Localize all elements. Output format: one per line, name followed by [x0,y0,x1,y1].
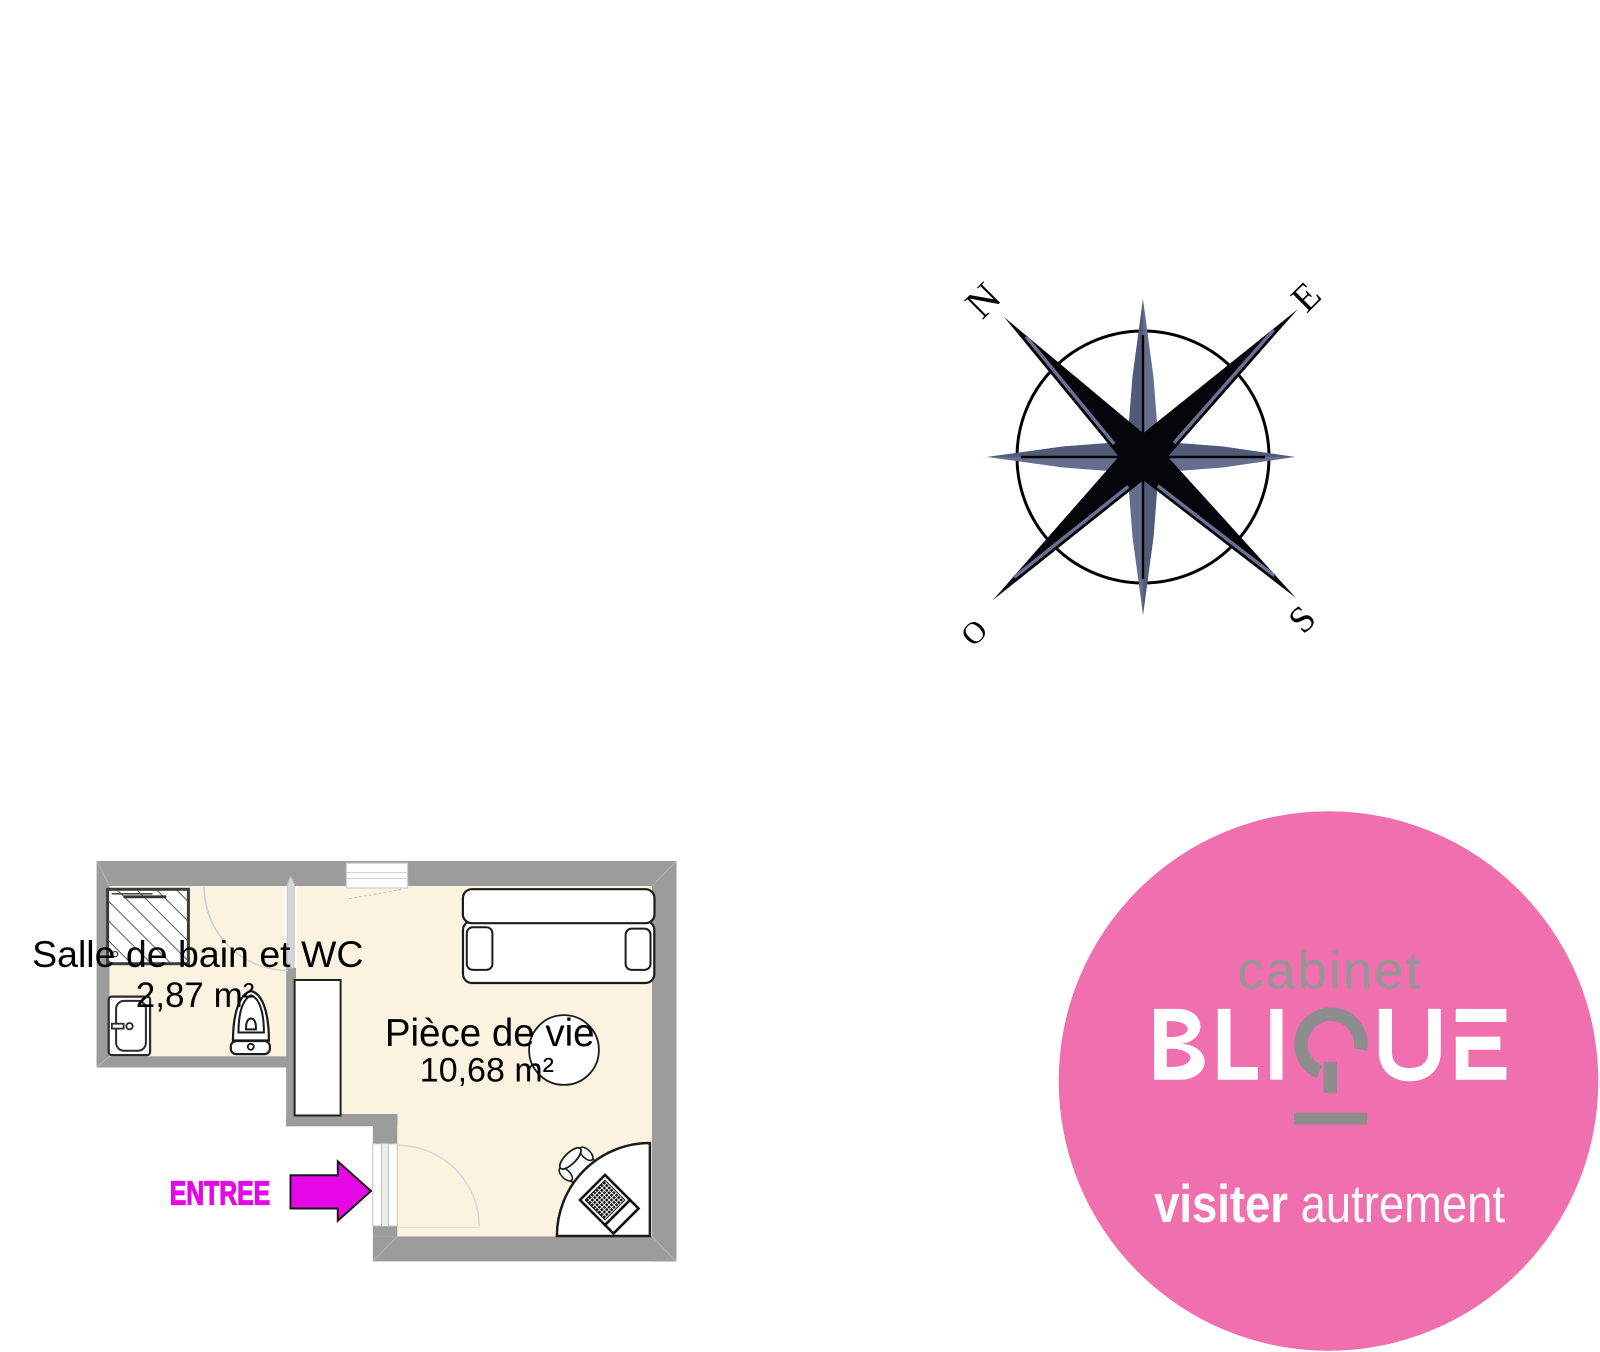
svg-text:ENTREE: ENTREE [170,1175,271,1213]
svg-text:Salle de bain et WC: Salle de bain et WC [32,933,363,975]
svg-text:N: N [956,273,1009,326]
svg-text:Pièce de vie: Pièce de vie [385,1012,595,1055]
svg-text:S: S [1281,598,1325,642]
svg-text:10,68 m²: 10,68 m² [420,1052,554,1090]
svg-text:O: O [954,612,995,653]
svg-text:E: E [1283,274,1329,320]
svg-text:cabinet: cabinet [1238,942,1423,1001]
svg-text:visiter autrement: visiter autrement [1154,1175,1505,1234]
svg-text:2,87 m²: 2,87 m² [136,976,255,1015]
